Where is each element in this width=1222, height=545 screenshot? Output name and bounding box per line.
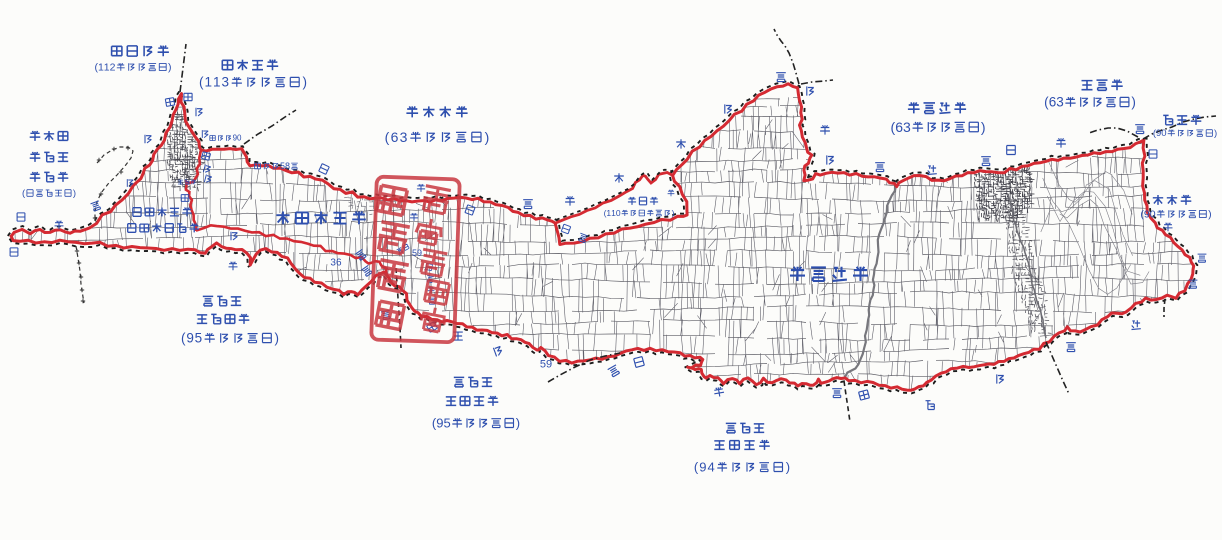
svg-text:6: 6 [895, 119, 903, 135]
svg-text:3: 3 [400, 129, 408, 145]
svg-text:1: 1 [204, 75, 212, 90]
svg-text:): ) [275, 331, 280, 346]
svg-text:8: 8 [285, 161, 290, 171]
svg-text:): ) [1208, 209, 1212, 221]
svg-text:3: 3 [222, 75, 230, 90]
svg-text:0: 0 [1150, 209, 1156, 221]
svg-text:9: 9 [186, 331, 194, 346]
svg-text:): ) [73, 188, 76, 199]
svg-text:5: 5 [195, 331, 203, 346]
svg-text:9: 9 [436, 415, 443, 430]
svg-text:(: ( [199, 75, 204, 90]
svg-text:5: 5 [443, 415, 450, 430]
svg-text:(: ( [181, 331, 186, 346]
svg-text:3: 3 [903, 119, 911, 135]
svg-text:9: 9 [546, 359, 552, 371]
svg-text:5: 5 [540, 359, 546, 371]
svg-text:): ) [672, 208, 675, 218]
svg-text:6: 6 [1049, 95, 1057, 110]
svg-text:4: 4 [707, 459, 714, 474]
svg-text:(: ( [385, 129, 390, 145]
svg-text:): ) [303, 75, 308, 90]
svg-text:2: 2 [110, 62, 116, 74]
svg-text:0: 0 [237, 134, 242, 143]
svg-text:): ) [168, 62, 172, 74]
svg-text:): ) [981, 119, 986, 135]
svg-text:6: 6 [391, 129, 399, 145]
svg-text:1: 1 [213, 75, 221, 90]
svg-text:): ) [485, 129, 490, 145]
svg-text:6: 6 [336, 257, 342, 268]
svg-text:): ) [1214, 128, 1217, 139]
svg-text:): ) [516, 415, 520, 430]
svg-text:3: 3 [1056, 95, 1064, 110]
svg-text:9: 9 [417, 248, 422, 258]
svg-text:9: 9 [699, 459, 706, 474]
svg-text:0: 0 [1161, 128, 1166, 139]
svg-text:0: 0 [616, 208, 621, 218]
svg-text:(: ( [694, 459, 699, 474]
svg-text:): ) [786, 459, 790, 474]
svg-text:): ) [1131, 95, 1136, 110]
